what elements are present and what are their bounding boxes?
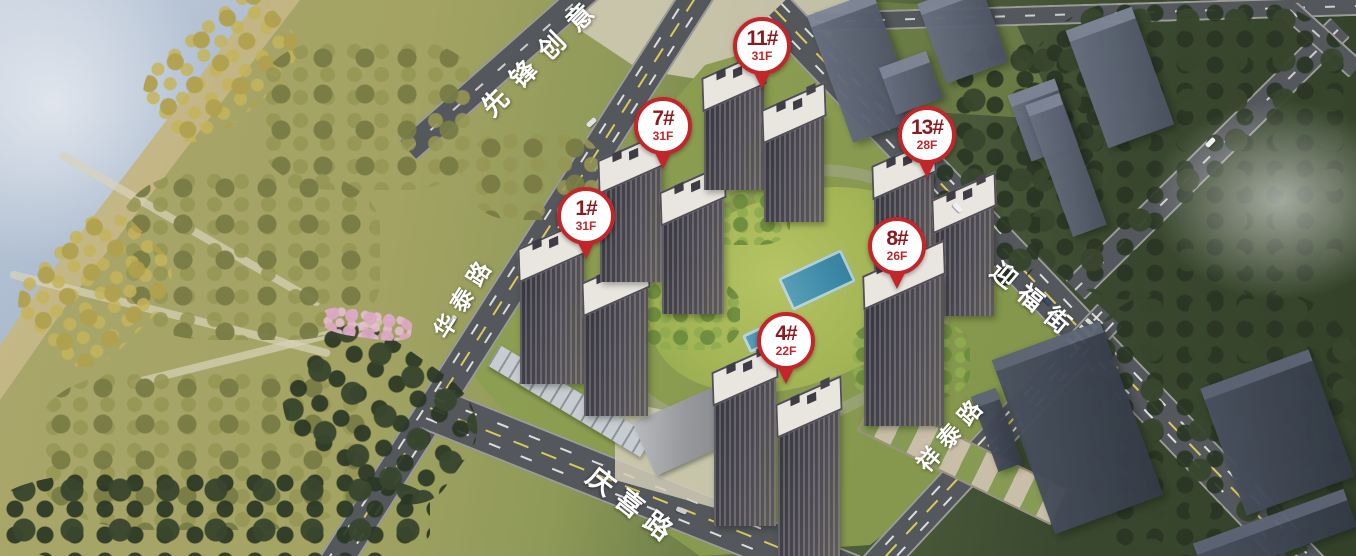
building-marker-1[interactable]: 1# 31F	[557, 187, 615, 267]
marker-badge: 4# 22F	[757, 312, 815, 370]
marker-building-number: 13#	[911, 117, 943, 138]
marker-floor-count: 31F	[576, 219, 597, 234]
marker-building-number: 8#	[886, 228, 907, 249]
tower-11a	[704, 82, 764, 190]
atmosphere-haze	[1150, 100, 1356, 300]
marker-building-number: 7#	[652, 108, 673, 129]
marker-floor-count: 31F	[653, 129, 674, 144]
marker-building-number: 11#	[747, 28, 778, 49]
tower-1b	[584, 286, 648, 416]
marker-badge: 1# 31F	[557, 187, 615, 245]
marker-building-number: 4#	[775, 323, 796, 344]
marker-badge: 11# 31F	[733, 17, 791, 75]
building-marker-7[interactable]: 7# 31F	[634, 97, 692, 177]
tower-8	[864, 276, 944, 426]
tower-7b	[662, 196, 724, 314]
marker-badge: 7# 31F	[634, 97, 692, 155]
marker-floor-count: 31F	[752, 49, 773, 64]
building-marker-4[interactable]: 4# 22F	[757, 312, 815, 392]
marker-badge: 8# 26F	[868, 217, 926, 275]
tower-1a	[520, 252, 584, 384]
tower-4b	[778, 408, 840, 556]
marker-badge: 13# 28F	[898, 106, 956, 164]
tower-11b	[764, 114, 824, 222]
building-marker-11[interactable]: 11# 31F	[733, 17, 791, 97]
tower-4a	[714, 376, 776, 526]
marker-floor-count: 28F	[917, 138, 938, 153]
marker-building-number: 1#	[575, 198, 596, 219]
marker-floor-count: 26F	[887, 249, 908, 264]
tree-cluster	[260, 40, 480, 190]
building-marker-13[interactable]: 13# 28F	[898, 106, 956, 186]
marker-floor-count: 22F	[776, 344, 797, 359]
building-marker-8[interactable]: 8# 26F	[868, 217, 926, 297]
masterplan-map: 先锋创意 华泰路 迎福街 庆喜路 祥泰路 1# 31F 7# 31F 11# 3…	[0, 0, 1356, 556]
